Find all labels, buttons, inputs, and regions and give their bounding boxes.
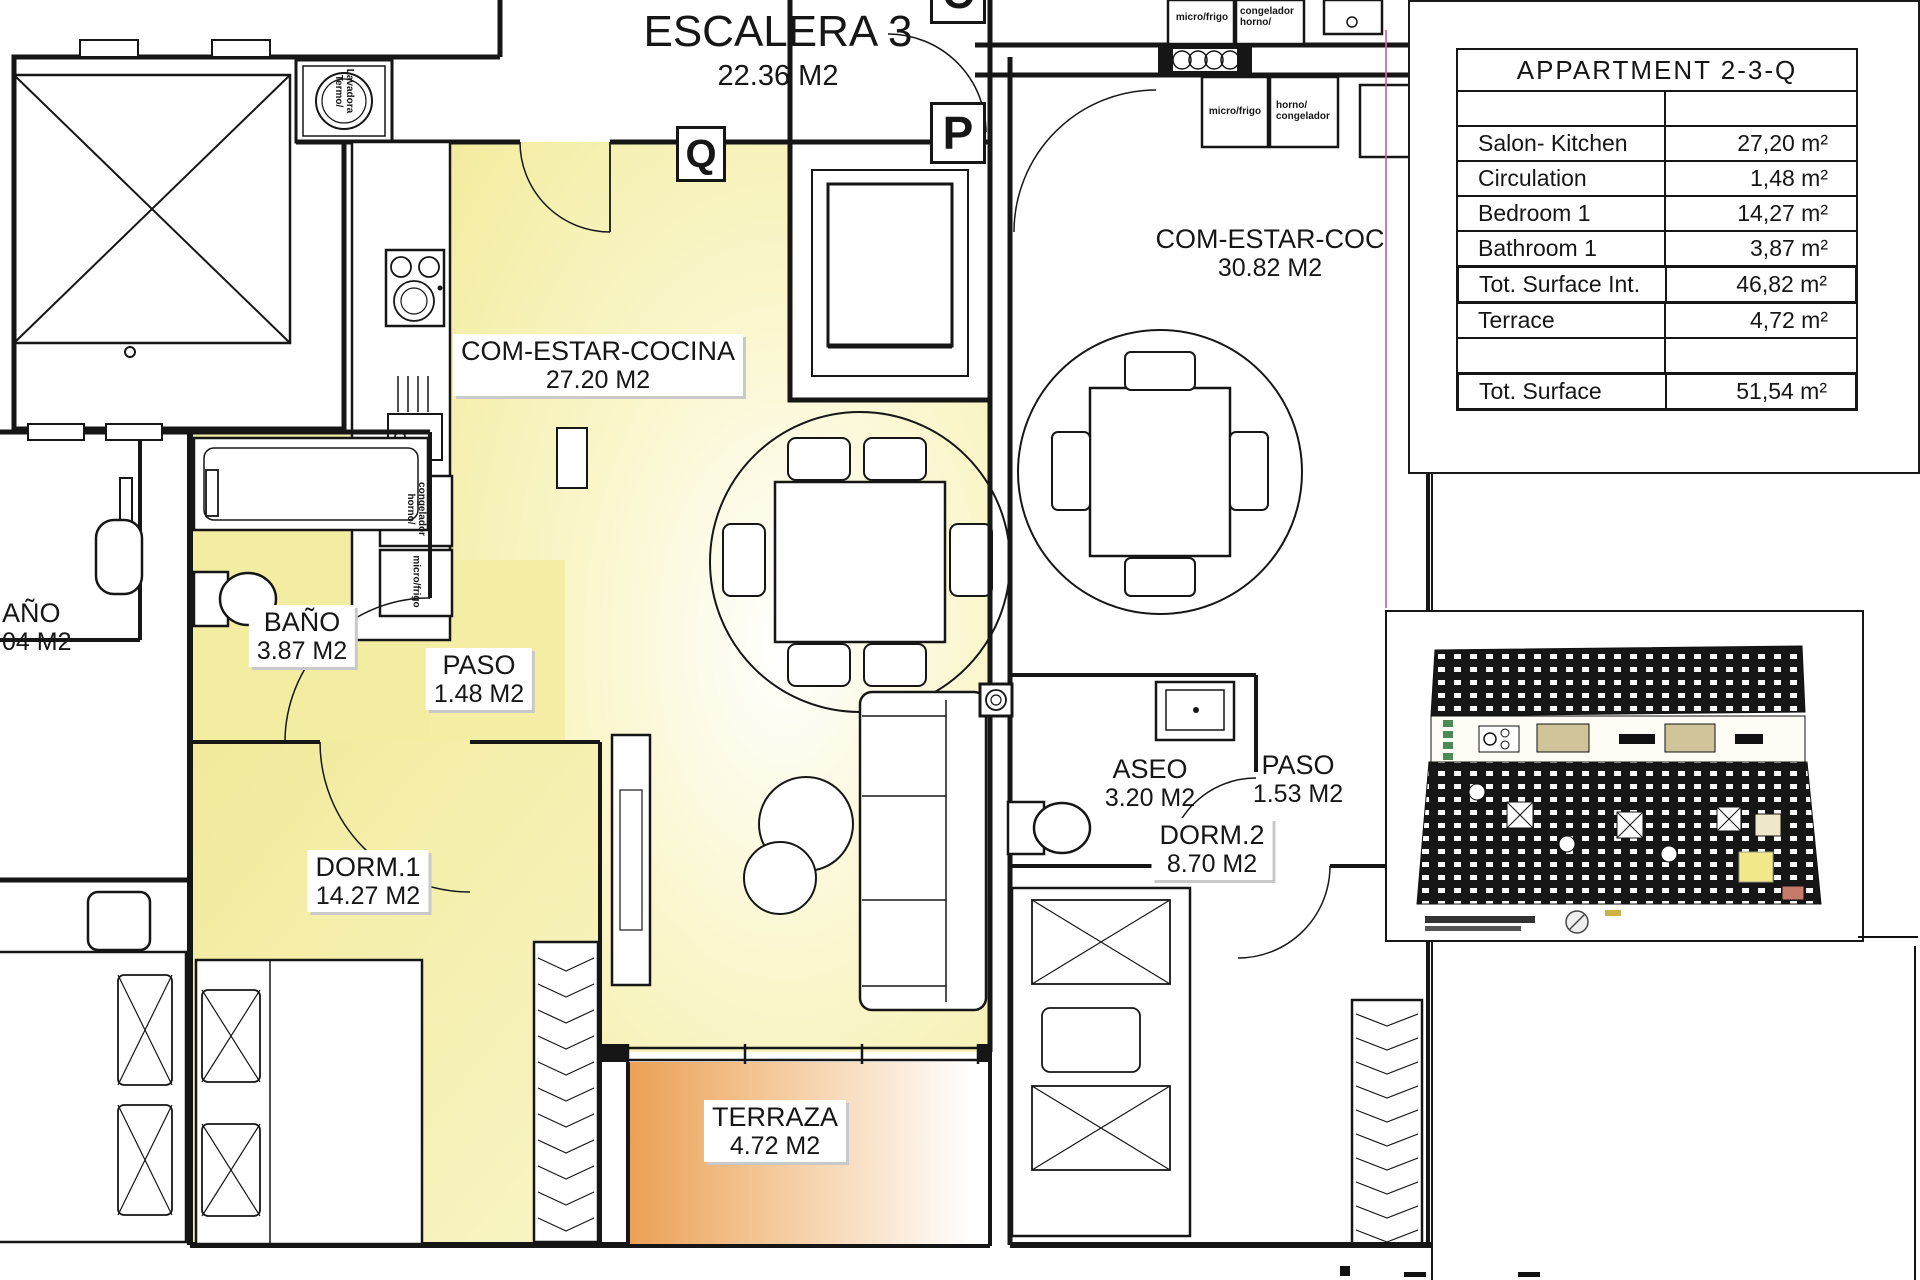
- room-area: 27.20 M2: [461, 366, 735, 394]
- room-name: AÑO: [2, 598, 71, 628]
- legend-label: Salon- Kitchen: [1458, 127, 1666, 160]
- room-name: PASO: [434, 650, 524, 680]
- legend-label: Circulation: [1458, 162, 1666, 195]
- stairwell-name: ESCALERA 3: [643, 10, 912, 54]
- micro-fridge-label: micro/frigo: [1205, 106, 1265, 117]
- legend-value: 3,87 m²: [1666, 232, 1856, 265]
- dining-table: [1090, 388, 1230, 556]
- pillow: [1042, 1008, 1140, 1072]
- neighbor-entrance-arc: [1014, 90, 1156, 232]
- legend-row-total-surface: Tot. Surface 51,54 m²: [1456, 372, 1858, 411]
- chair: [723, 524, 765, 596]
- dining-table: [775, 482, 945, 642]
- floor-plan-page: { "stairwell": { "name": "ESCALERA 3", "…: [0, 0, 1920, 1280]
- room-name: DORM.2: [1159, 820, 1264, 850]
- key-plan-frame: [1385, 610, 1864, 942]
- room-area: 1.53 M2: [1253, 780, 1343, 808]
- sheet-tick: [1518, 1272, 1540, 1277]
- room-name: DORM.1: [315, 852, 420, 882]
- legend-row: [1456, 337, 1858, 374]
- nightstand: [88, 892, 150, 950]
- legend-value: [1666, 92, 1856, 125]
- legend-label: Tot. Surface: [1459, 375, 1667, 408]
- pillar: [557, 428, 587, 488]
- room-area: 1.48 M2: [434, 680, 524, 708]
- legend-label: [1458, 339, 1666, 372]
- unit-letter: C: [942, 0, 974, 19]
- legend-value: 46,82 m²: [1667, 268, 1855, 301]
- chair: [1052, 432, 1090, 510]
- room-label-dorm-2: DORM.2 8.70 M2: [1151, 818, 1272, 880]
- room-area: 30.82 M2: [1156, 254, 1385, 282]
- room-area: 8.70 M2: [1159, 850, 1264, 878]
- legend-label: Bathroom 1: [1458, 232, 1666, 265]
- legend-label: [1458, 92, 1666, 125]
- legend-value: 51,54 m²: [1667, 375, 1855, 408]
- stairwell-title: ESCALERA 3 22.36 M2: [643, 10, 912, 93]
- coffee-table: [744, 842, 816, 914]
- kitchen-counter: [352, 142, 452, 640]
- legend-label: Bedroom 1: [1458, 197, 1666, 230]
- legend-value: 27,20 m²: [1666, 127, 1856, 160]
- room-name: ASEO: [1105, 754, 1195, 784]
- unit-letter: Q: [685, 132, 716, 177]
- room-label-paso-1: PASO 1.48 M2: [426, 648, 532, 710]
- sheet-tick: [1404, 1272, 1426, 1277]
- room-name: COM-ESTAR-COC: [1156, 224, 1385, 254]
- oven-freezer-label: horno/ congelador: [1276, 100, 1338, 122]
- left-neighbor-apartment: [0, 424, 190, 1242]
- legend-value: [1666, 339, 1856, 372]
- key-plan-highlight: [1739, 852, 1773, 882]
- toilet: [96, 520, 142, 594]
- room-label-com-estar-cocina: COM-ESTAR-COCINA 27.20 M2: [453, 334, 743, 396]
- legend-row: Bedroom 1 14,27 m²: [1456, 195, 1858, 232]
- room-area: 14.27 M2: [315, 882, 420, 910]
- legend-value: 4,72 m²: [1666, 304, 1856, 337]
- elevator-shaft: [790, 142, 990, 400]
- legend-title-row: APPARTMENT 2-3-Q: [1456, 48, 1858, 92]
- sofa: [860, 692, 986, 1010]
- room-label-bano: BAÑO 3.87 M2: [249, 605, 355, 667]
- sheet-edge-line: [1914, 946, 1916, 1280]
- bathtub: [194, 438, 428, 530]
- legend-label: Tot. Surface Int.: [1459, 268, 1667, 301]
- chair: [788, 438, 850, 480]
- chair: [864, 644, 926, 686]
- room-label-paso-neighbor: PASO 1.53 M2: [1245, 748, 1351, 810]
- legend-value: 14,27 m²: [1666, 197, 1856, 230]
- unit-marker-q: Q: [676, 126, 726, 182]
- legend-row: [1456, 90, 1858, 127]
- legend-row: Circulation 1,48 m²: [1456, 160, 1858, 197]
- room-area: 3.20 M2: [1105, 784, 1195, 812]
- room-label-bano-left-cut: AÑO 04 M2: [0, 596, 79, 658]
- legend-row: Salon- Kitchen 27,20 m²: [1456, 125, 1858, 162]
- legend-row: Bathroom 1 3,87 m²: [1456, 230, 1858, 267]
- chair: [788, 644, 850, 686]
- chair: [864, 438, 926, 480]
- room-name: BAÑO: [257, 607, 347, 637]
- sheet-line: [1858, 936, 1918, 938]
- stairwell-area: 22.36 M2: [643, 60, 912, 93]
- legend-label: Terrace: [1458, 304, 1666, 337]
- room-area: 04 M2: [2, 628, 71, 656]
- chair: [1125, 558, 1195, 596]
- micro-fridge-label: micro/frigo: [1172, 12, 1232, 23]
- washer-label: Lavadora Termo/: [333, 61, 355, 121]
- unit-marker-c: C: [930, 0, 986, 24]
- key-plan-thumbnail: [1387, 612, 1858, 936]
- legend-title: APPARTMENT 2-3-Q: [1517, 55, 1798, 86]
- micro-fridge-label: micro/frigo: [411, 552, 422, 612]
- room-name: COM-ESTAR-COCINA: [461, 336, 735, 366]
- room-label-dorm-1: DORM.1 14.27 M2: [307, 850, 428, 912]
- room-label-aseo: ASEO 3.20 M2: [1097, 752, 1203, 814]
- apartment-legend-table: APPARTMENT 2-3-Q Salon- Kitchen 27,20 m²…: [1456, 50, 1858, 411]
- legend-value: 1,48 m²: [1666, 162, 1856, 195]
- room-label-terraza: TERRAZA 4.72 M2: [704, 1100, 846, 1162]
- chair: [1230, 432, 1268, 510]
- room-area: 4.72 M2: [712, 1132, 838, 1160]
- unit-marker-p: P: [930, 102, 986, 164]
- legend-row: Terrace 4,72 m²: [1456, 302, 1858, 339]
- room-name: PASO: [1253, 750, 1343, 780]
- freezer-oven-label: congelador horno/: [405, 479, 427, 539]
- sheet-tick: [1340, 1266, 1350, 1276]
- room-label-com-estar-coc-neighbor: COM-ESTAR-COC 30.82 M2: [1148, 222, 1393, 284]
- right-neighbor-apartment: [975, 0, 1432, 1245]
- unit-letter: P: [943, 106, 974, 160]
- freezer-oven-label: congelador horno/: [1240, 6, 1302, 28]
- chair: [950, 524, 992, 596]
- room-name: TERRAZA: [712, 1102, 838, 1132]
- chair: [1125, 352, 1195, 390]
- tv-unit: [612, 735, 650, 985]
- legend-row-total-interior: Tot. Surface Int. 46,82 m²: [1456, 265, 1858, 304]
- room-area: 3.87 M2: [257, 637, 347, 665]
